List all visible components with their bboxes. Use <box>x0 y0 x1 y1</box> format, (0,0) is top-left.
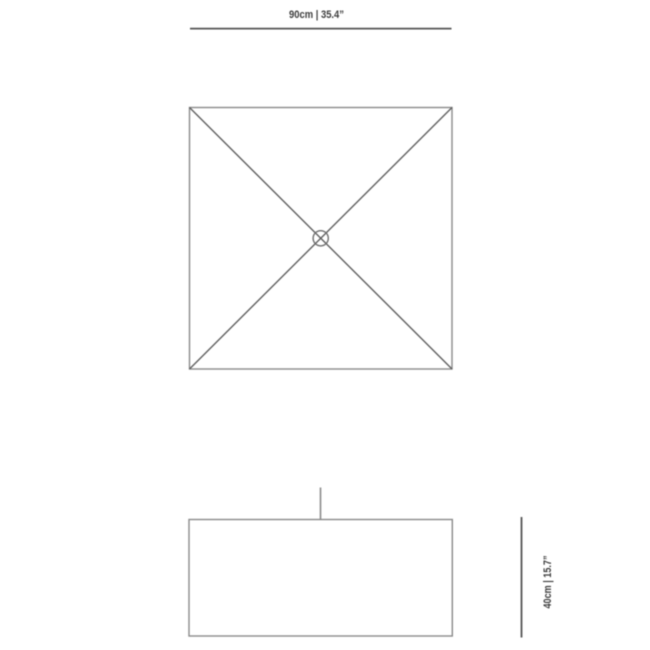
svg-text:40cm | 15.7”: 40cm | 15.7” <box>542 556 554 609</box>
svg-text:90cm | 35.4”: 90cm | 35.4” <box>289 9 344 21</box>
